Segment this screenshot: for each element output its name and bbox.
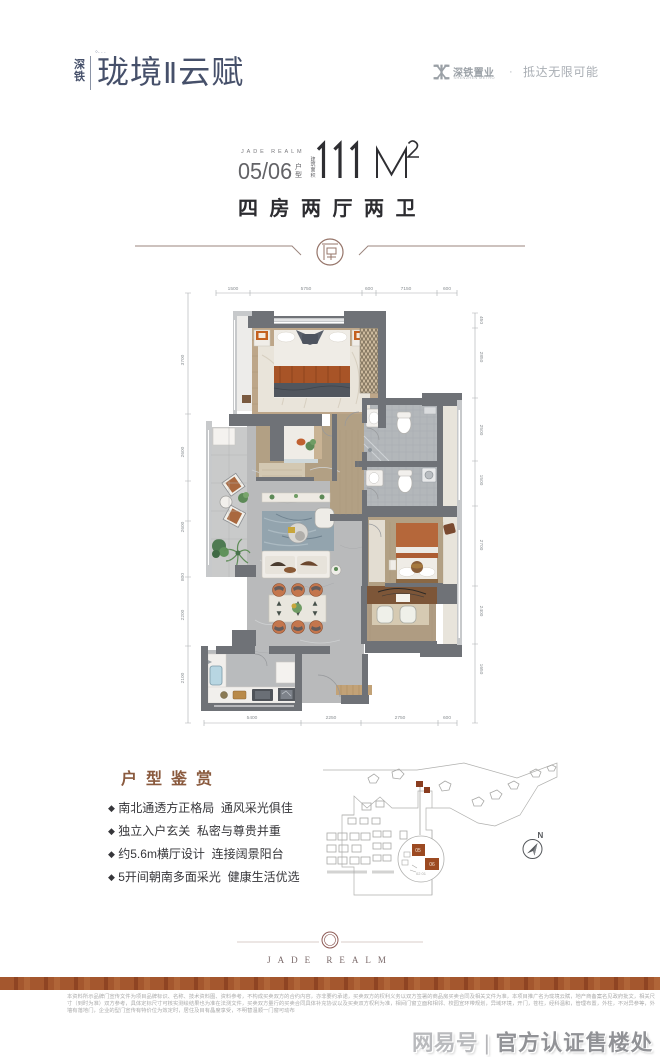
svg-text:2100: 2100 <box>180 672 186 683</box>
svg-text:1650: 1650 <box>478 664 484 675</box>
svg-text:02 01: 02 01 <box>416 871 427 876</box>
svg-text:450: 450 <box>478 316 484 324</box>
svg-text:05: 05 <box>415 848 421 854</box>
svg-text:1500: 1500 <box>228 286 239 292</box>
svg-text:N: N <box>538 831 544 840</box>
svg-text:600: 600 <box>443 715 451 721</box>
svg-text:06: 06 <box>429 862 435 868</box>
svg-text:2600: 2600 <box>180 521 186 532</box>
svg-text:600: 600 <box>443 286 451 292</box>
svg-text:5400: 5400 <box>247 715 258 721</box>
svg-text:2400: 2400 <box>478 606 484 617</box>
svg-text:2700: 2700 <box>478 540 484 551</box>
svg-text:2600: 2600 <box>180 446 186 457</box>
svg-text:2850: 2850 <box>478 352 484 363</box>
svg-text:2200: 2200 <box>180 609 186 620</box>
svg-text:2250: 2250 <box>326 715 337 721</box>
svg-text:5750: 5750 <box>301 286 312 292</box>
svg-text:7150: 7150 <box>401 286 412 292</box>
svg-text:2500: 2500 <box>478 425 484 436</box>
svg-text:800: 800 <box>180 573 186 581</box>
svg-text:3700: 3700 <box>180 354 186 365</box>
svg-text:JADE REALM: JADE REALM <box>267 955 393 965</box>
svg-text:2750: 2750 <box>395 715 406 721</box>
svg-text:600: 600 <box>365 286 373 292</box>
svg-text:1500: 1500 <box>478 475 484 486</box>
